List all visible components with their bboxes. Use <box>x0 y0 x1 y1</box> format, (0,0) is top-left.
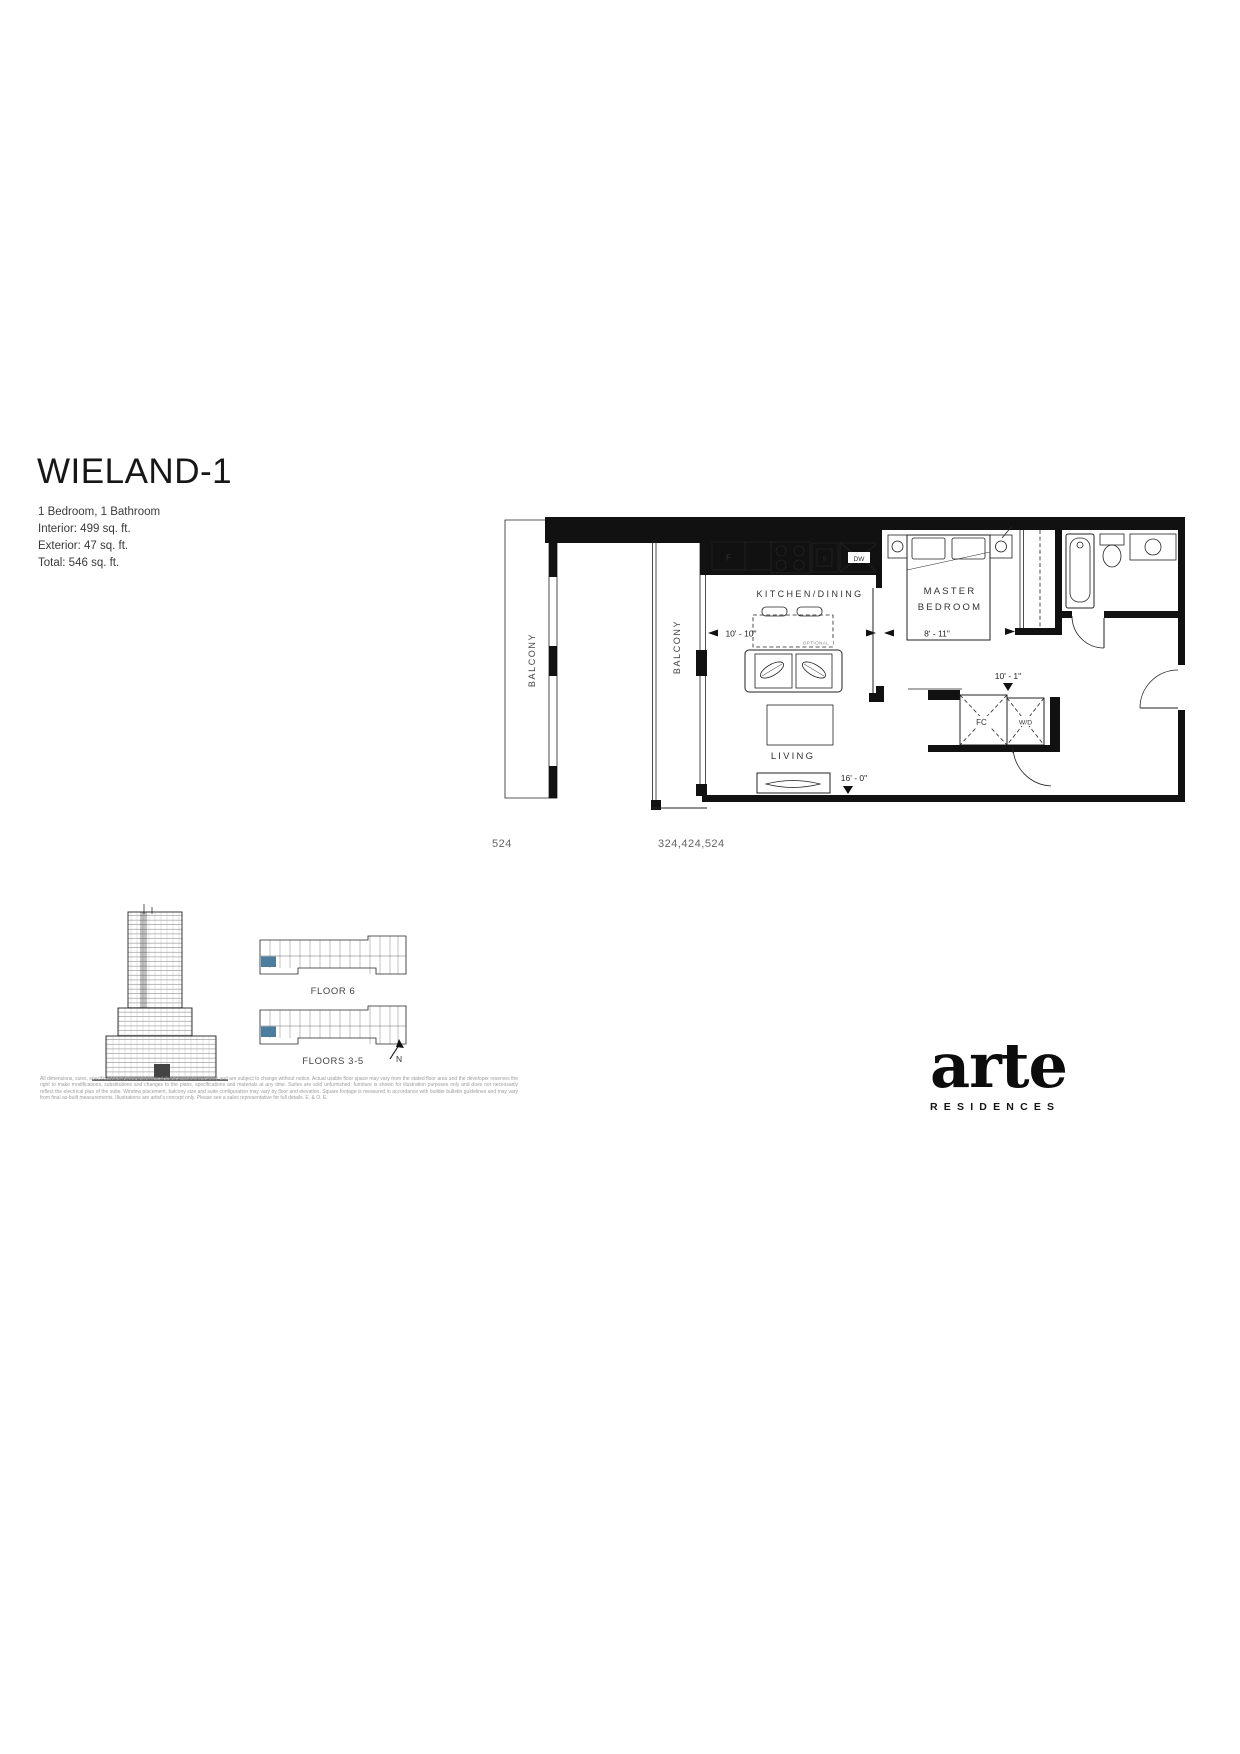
sink-label: S <box>823 557 827 563</box>
highlighted-unit <box>261 1027 276 1038</box>
detached-balcony: BALCONY <box>505 520 557 798</box>
floor-plan-drawing: BALCONY BALCONY <box>450 450 1200 815</box>
detail-total: Total: 546 sq. ft. <box>38 555 160 572</box>
tv-console <box>757 773 830 793</box>
unit-number-left: 524 <box>492 838 512 850</box>
sliding-door <box>869 588 884 702</box>
bedroom-dim: 8' - 11" <box>924 629 950 639</box>
foyer-door <box>1013 747 1051 786</box>
washer-dryer: W/D <box>1007 698 1044 745</box>
top-wall-corner <box>545 517 713 543</box>
nightstand-left <box>888 535 907 558</box>
highlighted-unit <box>261 957 276 968</box>
hall-dim: 10' - 1" <box>995 671 1021 681</box>
unit-balcony: BALCONY <box>651 540 707 810</box>
kitchen-dim: 10' - 10" <box>725 629 756 639</box>
master-label-2: BEDROOM <box>918 602 983 613</box>
living-dim: 16' - 0" <box>841 773 867 783</box>
optional-label: OPTIONAL <box>803 641 829 646</box>
front-closet-label: FC <box>976 718 987 727</box>
kitchen-dining-label: KITCHEN/DINING <box>756 589 863 599</box>
floorplan-page: WIELAND-1 1 Bedroom, 1 Bathroom Interior… <box>0 0 1240 1754</box>
master-bedroom: MASTER BEDROOM <box>869 522 1062 702</box>
unit-details: 1 Bedroom, 1 Bathroom Interior: 499 sq. … <box>38 504 160 572</box>
optional-dining-table: OPTIONAL <box>753 607 833 647</box>
washer-dryer-label: W/D <box>1019 720 1032 727</box>
balcony-label: BALCONY <box>527 633 537 687</box>
dimension-line: 10' - 10" 8' - 11" <box>708 628 1015 639</box>
detail-rooms: 1 Bedroom, 1 Bathroom <box>38 504 160 521</box>
logo-wordmark: arte <box>930 1036 1086 1096</box>
living-label: LIVING <box>771 751 815 762</box>
detail-interior: Interior: 499 sq. ft. <box>38 521 160 538</box>
master-label-1: MASTER <box>924 586 977 597</box>
brand-logo: arte RESIDENCES <box>930 1036 1086 1113</box>
bathroom <box>1062 534 1185 648</box>
kitchen: F S DW <box>700 530 882 575</box>
bathroom-door <box>1072 616 1104 648</box>
detail-exterior: Exterior: 47 sq. ft. <box>38 538 160 555</box>
bedroom-closet <box>1020 530 1040 628</box>
bathtub <box>1066 534 1094 608</box>
dishwasher-label: DW <box>854 556 866 563</box>
living-room: LIVING 16' - 0" <box>745 650 867 794</box>
vanity <box>1130 534 1176 560</box>
coffee-table <box>767 705 833 745</box>
page-title: WIELAND-1 <box>37 452 232 492</box>
keyplan-floor6 <box>258 934 408 980</box>
balcony-label: BALCONY <box>672 620 682 674</box>
sofa <box>745 650 842 692</box>
keyplan-floor6-label: FLOOR 6 <box>258 986 408 997</box>
front-closet: FC <box>960 695 1007 745</box>
logo-subtitle: RESIDENCES <box>930 1101 1086 1113</box>
north-label: N <box>396 1054 402 1064</box>
building-elevation <box>92 902 228 1086</box>
entry-door <box>1140 670 1178 708</box>
toilet <box>1100 534 1124 567</box>
fridge-label: F <box>726 554 731 563</box>
unit-number-right: 324,424,524 <box>658 838 725 850</box>
north-arrow-icon: N <box>386 1036 408 1064</box>
foyer: 10' - 1" FC W/D <box>908 671 1060 786</box>
disclaimer-text: All dimensions, sizes, specifications, l… <box>40 1076 518 1102</box>
nightstand-right <box>990 535 1012 558</box>
